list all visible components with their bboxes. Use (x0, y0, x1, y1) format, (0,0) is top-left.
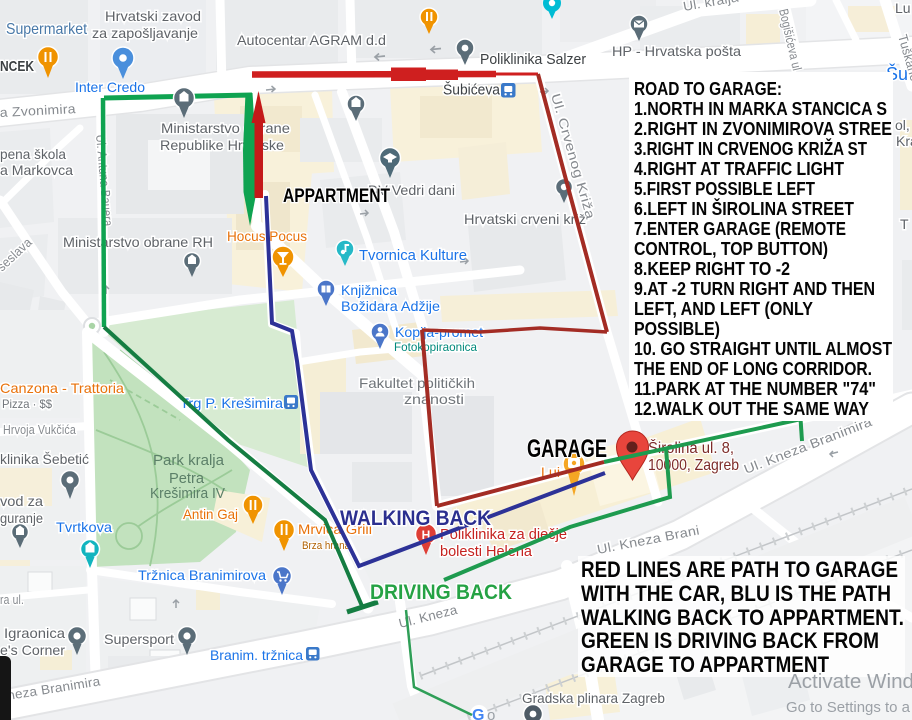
svg-text:WITH THE CAR, BLU IS THE PATH: WITH THE CAR, BLU IS THE PATH (581, 581, 891, 606)
svg-text:Go to Settings to a: Go to Settings to a (786, 699, 911, 716)
svg-text:ol,: ol, (895, 117, 910, 133)
svg-text:Autocentar AGRAM d.d: Autocentar AGRAM d.d (237, 32, 386, 48)
svg-text:6.LEFT IN ŠIROLINA STREET: 6.LEFT IN ŠIROLINA STREET (634, 198, 854, 219)
svg-text:Tržnica Branimirova: Tržnica Branimirova (138, 567, 266, 583)
svg-text:Supersport: Supersport (104, 631, 174, 647)
svg-text:APPARTMENT: APPARTMENT (283, 186, 390, 207)
svg-text:T: T (900, 216, 909, 232)
svg-text:Brza hrana: Brza hrana (302, 540, 351, 552)
svg-text:ra ul.: ra ul. (0, 592, 24, 607)
svg-text:Inter Credo: Inter Credo (75, 79, 145, 95)
svg-text:GARAGE: GARAGE (527, 435, 607, 463)
svg-text:HP - Hrvatska pošta: HP - Hrvatska pošta (612, 43, 741, 59)
svg-text:e's Corner: e's Corner (0, 642, 65, 658)
svg-text:Hrvoja Vukčića: Hrvoja Vukčića (3, 422, 76, 437)
svg-text:Hrvatski zavod: Hrvatski zavod (105, 8, 201, 24)
svg-text:znanosti: znanosti (404, 391, 464, 407)
svg-text:bolesti Helena: bolesti Helena (440, 543, 533, 560)
svg-text:Branim. tržnica: Branim. tržnica (210, 647, 303, 663)
svg-text:Tvrtkova: Tvrtkova (56, 519, 112, 535)
svg-text:10. GO STRAIGHT UNTIL ALMOST: 10. GO STRAIGHT UNTIL ALMOST (634, 339, 892, 359)
svg-text:za zapošljavanje: za zapošljavanje (92, 25, 198, 41)
svg-text:12.WALK OUT THE SAME WAY: 12.WALK OUT THE SAME WAY (634, 399, 869, 419)
svg-text:DRIVING BACK: DRIVING BACK (370, 581, 512, 604)
svg-text:Božidara Adžije: Božidara Adžije (341, 298, 440, 314)
svg-text:THE END OF LONG CORRIDOR.: THE END OF LONG CORRIDOR. (634, 359, 872, 379)
svg-text:11.PARK AT THE NUMBER "74": 11.PARK AT THE NUMBER "74" (634, 379, 876, 399)
svg-text:5.FIRST POSSIBLE LEFT: 5.FIRST POSSIBLE LEFT (634, 179, 815, 199)
svg-text:o: o (487, 707, 495, 720)
svg-text:GREEN IS DRIVING BACK FROM: GREEN IS DRIVING BACK FROM (581, 628, 879, 653)
svg-text:Hrvatski crveni križ: Hrvatski crveni križ (464, 211, 586, 227)
svg-text:G: G (472, 707, 484, 720)
svg-text:Gradska plinara Zagreb: Gradska plinara Zagreb (522, 690, 665, 706)
svg-text:ROAD TO GARAGE:: ROAD TO GARAGE: (634, 79, 782, 99)
svg-text:Fotokopiraonica: Fotokopiraonica (394, 340, 477, 354)
svg-text:RED LINES ARE PATH TO GARAGE: RED LINES ARE PATH TO GARAGE (581, 557, 898, 582)
svg-text:8.KEEP RIGHT TO -2: 8.KEEP RIGHT TO -2 (634, 259, 790, 279)
svg-text:Ministarstvo obrane RH: Ministarstvo obrane RH (63, 234, 213, 250)
svg-text:Poliklinika Salzer: Poliklinika Salzer (480, 51, 586, 68)
svg-text:NCEK: NCEK (0, 58, 34, 75)
svg-text:1.NORTH IN MARKA STANCICA S: 1.NORTH IN MARKA STANCICA S (634, 99, 887, 119)
svg-text:Park kralja: Park kralja (153, 452, 225, 469)
svg-text:Igraonica: Igraonica (4, 625, 65, 641)
svg-text:CONTROL, TOP BUTTON): CONTROL, TOP BUTTON) (634, 239, 828, 259)
svg-text:Pizza · $$: Pizza · $$ (2, 397, 52, 411)
svg-text:Širolina ul. 8,: Širolina ul. 8, (648, 438, 734, 457)
svg-text:Fakultet političkih: Fakultet političkih (359, 375, 475, 391)
svg-text:Republike Hrvatske: Republike Hrvatske (160, 137, 284, 153)
svg-text:Šubićeva: Šubićeva (443, 82, 501, 99)
svg-text:POSSIBLE): POSSIBLE) (634, 319, 720, 339)
svg-text:2.RIGHT IN ZVONIMIROVA STREE: 2.RIGHT IN ZVONIMIROVA STREE (634, 119, 892, 139)
svg-text:LEFT, AND LEFT (ONLY: LEFT, AND LEFT (ONLY (634, 299, 813, 319)
svg-text:Lu: Lu (895, 0, 911, 16)
svg-text:Ministarstvo obrane: Ministarstvo obrane (161, 120, 290, 136)
svg-text:WALKING BACK TO APPARTMENT.: WALKING BACK TO APPARTMENT. (581, 605, 904, 630)
svg-text:Antin Gaj: Antin Gaj (183, 506, 238, 522)
svg-text:Activate Wind: Activate Wind (788, 671, 912, 693)
svg-text:Kra: Kra (896, 133, 912, 149)
svg-text:10000, Zagreb: 10000, Zagreb (648, 457, 739, 474)
svg-text:4.RIGHT AT TRAFFIC LIGHT: 4.RIGHT AT TRAFFIC LIGHT (634, 159, 844, 179)
svg-text:klinika Šebetić: klinika Šebetić (0, 451, 89, 467)
svg-text:3.RIGHT IN CRVENOG KRIŽA ST: 3.RIGHT IN CRVENOG KRIŽA ST (634, 138, 867, 159)
svg-text:7.ENTER GARAGE (REMOTE: 7.ENTER GARAGE (REMOTE (634, 219, 846, 239)
svg-text:vod za: vod za (0, 493, 43, 509)
svg-text:Canzona - Trattoria: Canzona - Trattoria (0, 380, 124, 396)
svg-text:Tvornica Kulture: Tvornica Kulture (359, 247, 467, 264)
svg-text:a Markovca: a Markovca (0, 162, 73, 178)
svg-text:WALKING BACK: WALKING BACK (340, 507, 491, 530)
svg-text:Supermarket: Supermarket (6, 21, 87, 38)
svg-text:9.AT -2 TURN RIGHT AND THEN: 9.AT -2 TURN RIGHT AND THEN (634, 279, 875, 299)
svg-text:Knjižnica: Knjižnica (341, 282, 397, 298)
svg-text:pena škola: pena škola (0, 146, 66, 162)
svg-text:Krešimira IV: Krešimira IV (150, 485, 225, 502)
